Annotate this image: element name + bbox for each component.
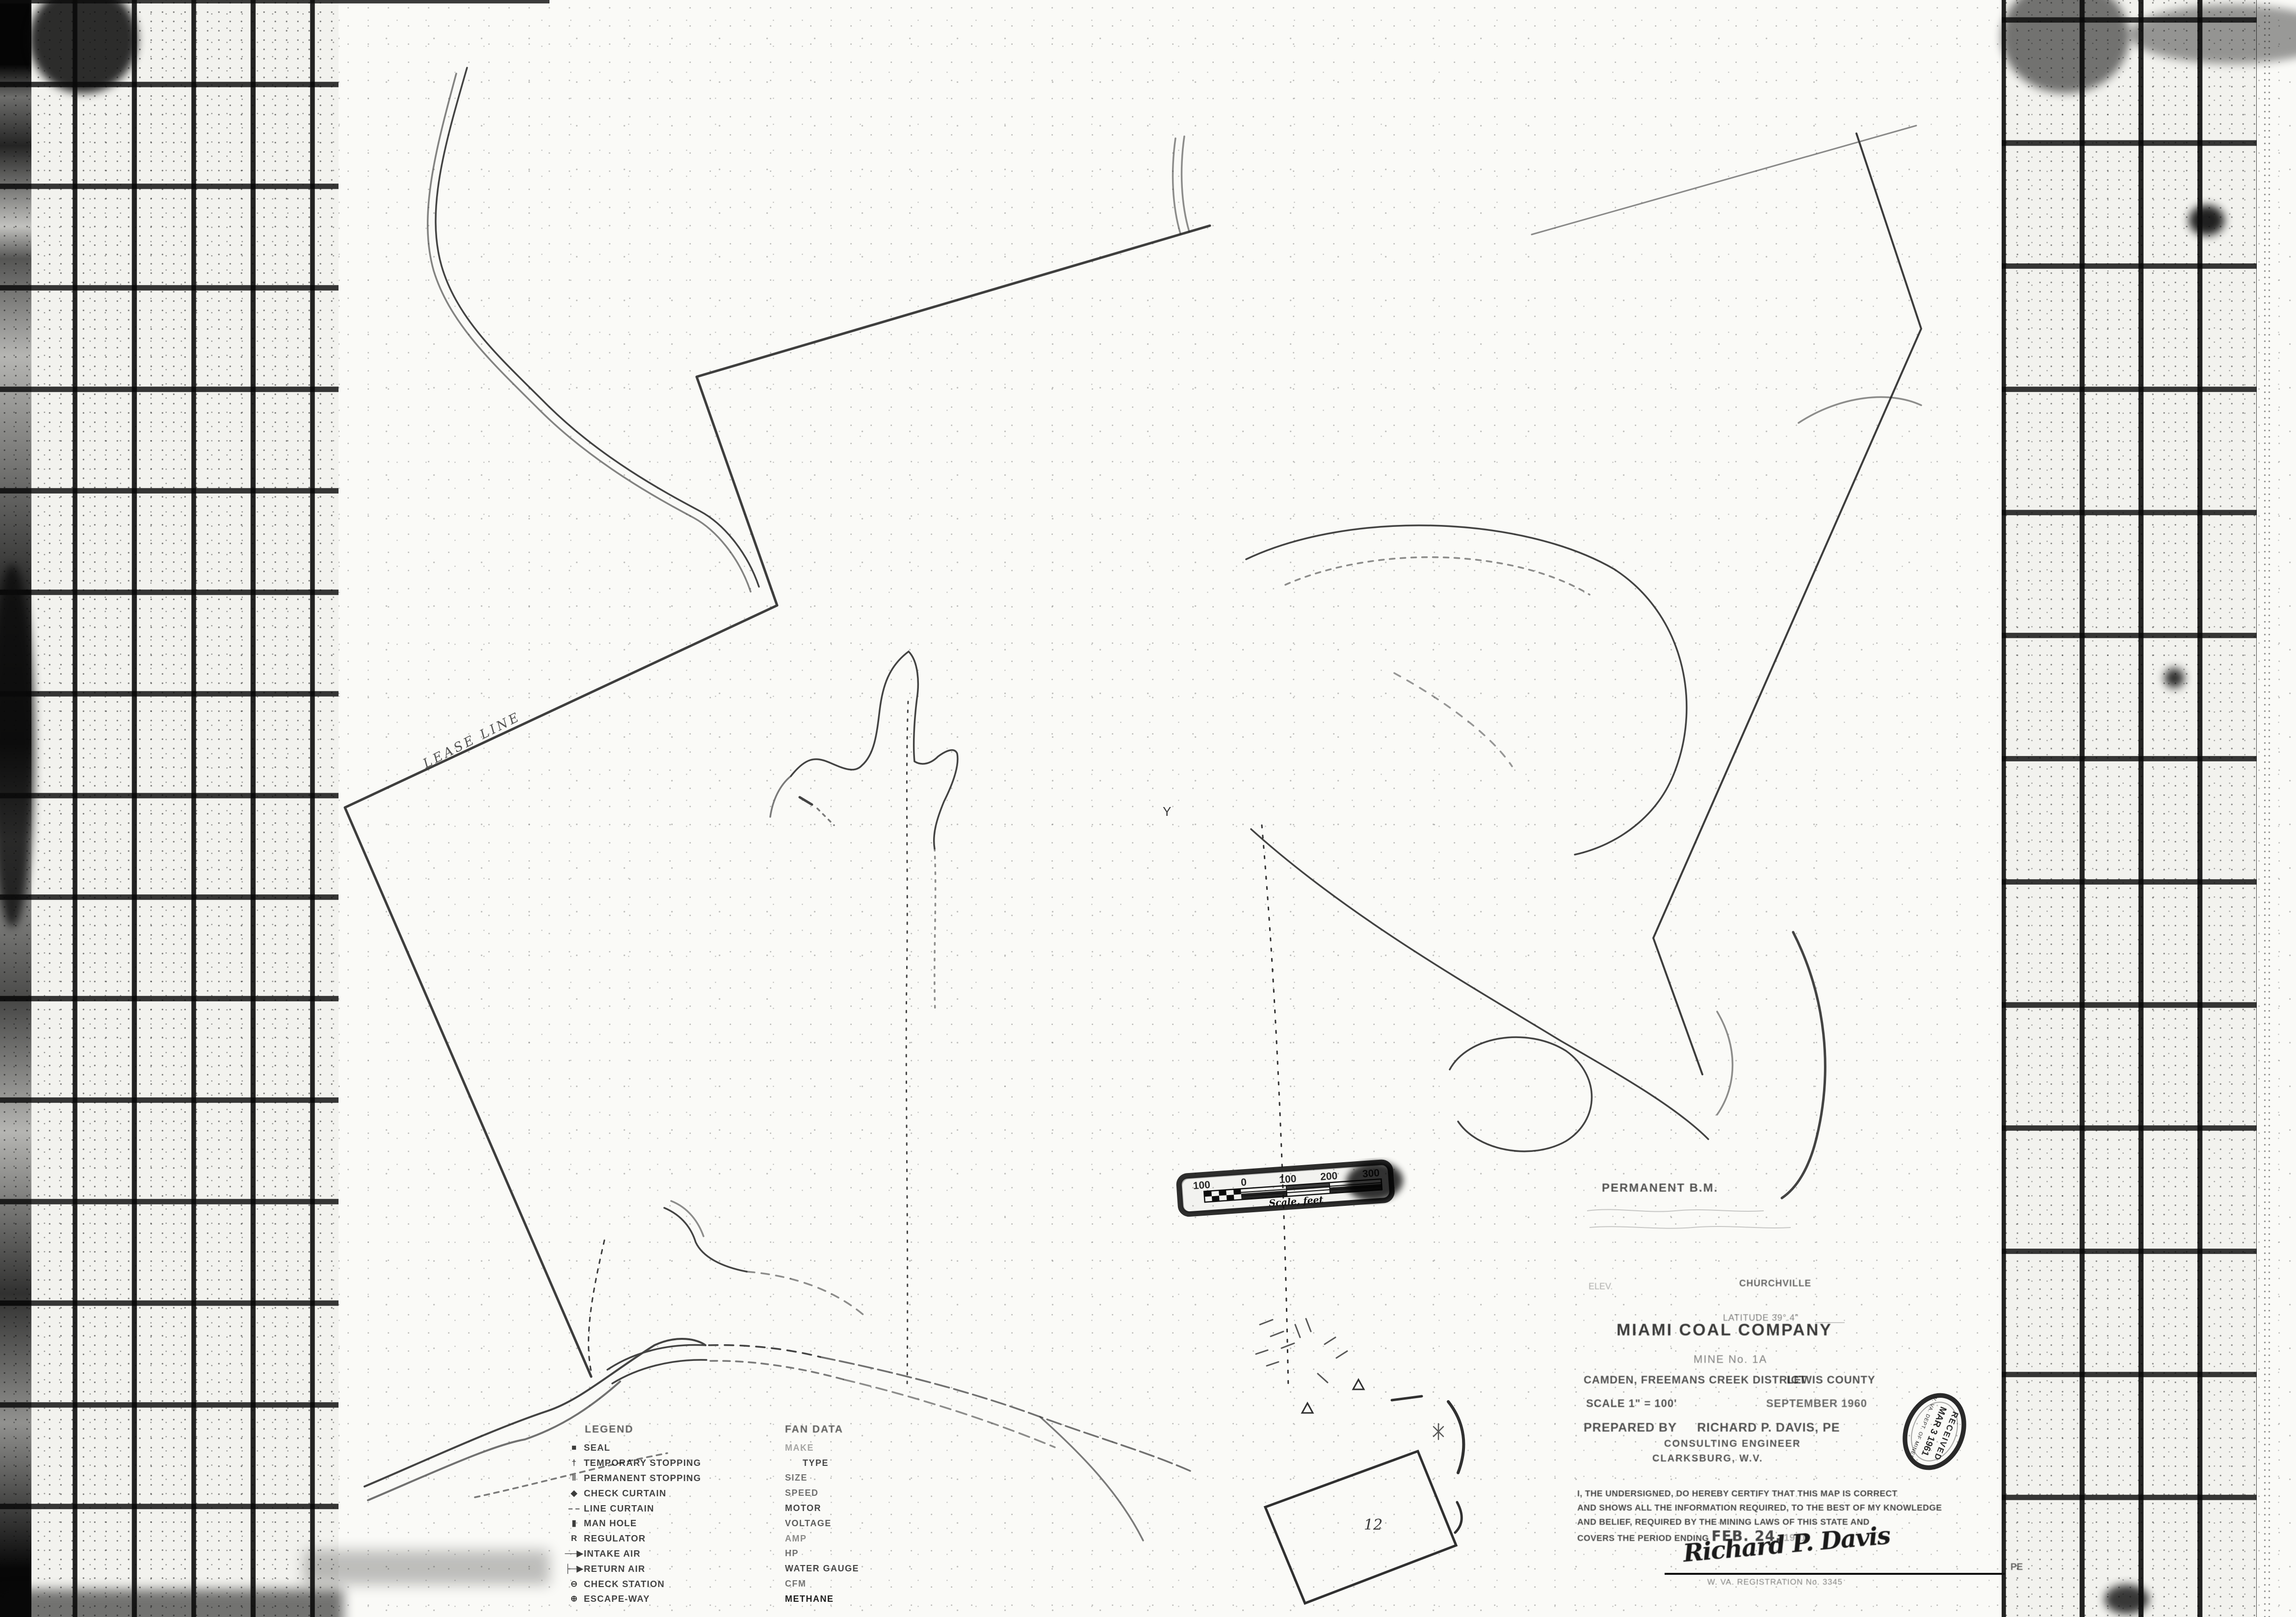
scale-tick: 100 xyxy=(1193,1179,1211,1192)
map-linework: Y 12 LEASE LINE 100 0 100 200 300 xyxy=(0,0,2296,1617)
registration-number: W. VA. REGISTRATION No. 3345 xyxy=(1707,1578,1843,1587)
man-hole-symbol: ▮ xyxy=(564,1518,584,1528)
certification-line: AND SHOWS ALL THE INFORMATION REQUIRED, … xyxy=(1577,1501,1942,1515)
district-line: CAMDEN, FREEMANS CREEK DISTRICT xyxy=(1584,1374,1806,1386)
engineer-city: CLARKSBURG, W.V. xyxy=(1652,1453,1763,1464)
fan-data-row: MAKE xyxy=(785,1440,859,1456)
legend-item-label: LINE CURTAIN xyxy=(584,1503,654,1514)
fan-data-panel: FAN DATA MAKE TYPE SIZE SPEED MOTOR VOLT… xyxy=(785,1424,859,1607)
signature-line xyxy=(1665,1573,2005,1575)
fan-field-label: VOLTAGE xyxy=(785,1518,832,1529)
check-curtain-symbol: ◆ xyxy=(564,1488,584,1498)
stream-lines xyxy=(365,68,1921,1540)
county-name: LEWIS COUNTY xyxy=(1787,1374,1876,1386)
lease-line-label: LEASE LINE xyxy=(420,709,523,772)
legend-item-check-station: ⊖CHECK STATION xyxy=(564,1576,701,1591)
legend-item-seal: ■SEAL xyxy=(564,1440,701,1456)
legend-item-label: SEAL xyxy=(584,1442,610,1453)
legend-item-check-curtain: ◆CHECK CURTAIN xyxy=(564,1486,701,1501)
legend-title: LEGEND xyxy=(585,1424,701,1435)
faded-note-scribbles xyxy=(1587,1209,1845,1323)
fan-data-row: HP xyxy=(785,1546,859,1562)
mine-name: MINE No. 1A xyxy=(1694,1353,1767,1366)
legend-item-temporary-stopping: †TEMPORARY STOPPING xyxy=(564,1456,701,1471)
note-permanent-bm: PERMANENT B.M. xyxy=(1602,1181,1718,1195)
company-name: MIAMI COAL COMPANY xyxy=(1617,1321,1832,1340)
fan-field-label: SIZE xyxy=(785,1473,808,1483)
fan-data-row: WATER GAUGE xyxy=(785,1561,859,1576)
legend-item-label: MAN HOLE xyxy=(584,1518,637,1529)
received-stamp: RECEIVED MAR 3 1961 W. VA. DEPT. OF MINE… xyxy=(1895,1386,1975,1477)
fan-data-row: TYPE xyxy=(785,1456,859,1471)
scale-bar: 100 0 100 200 300 Scale, feet xyxy=(1178,1160,1405,1215)
legend-item-label: CHECK CURTAIN xyxy=(584,1488,666,1499)
fan-field-label: MAKE xyxy=(785,1443,814,1453)
fan-data-row: VOLTAGE xyxy=(785,1516,859,1531)
fan-data-row: METHANE xyxy=(785,1591,859,1607)
legend-item-label: INTAKE AIR xyxy=(584,1548,641,1559)
note-elevation: ELEV. xyxy=(1589,1281,1613,1292)
y-marker-label: Y xyxy=(1163,804,1171,819)
temporary-stopping-symbol: † xyxy=(564,1458,584,1468)
legend-item-label: CHECK STATION xyxy=(584,1579,665,1590)
scale-tick: 0 xyxy=(1241,1176,1247,1188)
fan-field-label: CFM xyxy=(785,1579,807,1589)
intake-air-arrow-symbol: ──▶ xyxy=(564,1549,584,1559)
legend-item-line-curtain: – –LINE CURTAIN xyxy=(564,1501,701,1516)
signature-suffix: PE xyxy=(2010,1562,2023,1573)
legend-item-return-air: ├─▶RETURN AIR xyxy=(564,1561,701,1576)
legend-item-escape-way: ⊕ESCAPE-WAY xyxy=(564,1591,701,1607)
seal-symbol: ■ xyxy=(564,1443,584,1453)
fan-field-label: AMP xyxy=(785,1534,807,1544)
fan-field-label: MOTOR xyxy=(785,1503,821,1513)
scale-tick: 200 xyxy=(1320,1170,1338,1182)
regulator-symbol: R xyxy=(564,1534,584,1543)
engineer-name: RICHARD P. DAVIS, PE xyxy=(1697,1421,1840,1434)
prepared-by-line: PREPARED BY RICHARD P. DAVIS, PE xyxy=(1584,1421,1840,1435)
map-date: SEPTEMBER 1960 xyxy=(1766,1397,1867,1410)
legend-item-label: TEMPORARY STOPPING xyxy=(584,1458,701,1468)
legend-item-label: RETURN AIR xyxy=(584,1564,645,1574)
fan-data-row: SPEED xyxy=(785,1486,859,1501)
legend-item-permanent-stopping: ‖PERMANENT STOPPING xyxy=(564,1471,701,1486)
legend-item-regulator: RREGULATOR xyxy=(564,1531,701,1546)
fan-field-label: METHANE xyxy=(785,1594,834,1604)
prepared-by-label: PREPARED BY xyxy=(1584,1421,1676,1434)
check-station-symbol: ⊖ xyxy=(564,1579,584,1589)
fan-data-row: SIZE xyxy=(785,1471,859,1486)
fan-field-label: SPEED xyxy=(785,1488,819,1498)
engineer-title: CONSULTING ENGINEER xyxy=(1664,1438,1801,1450)
note-benchmark-ref: CHURCHVILLE xyxy=(1739,1278,1811,1289)
fan-data-row: MOTOR xyxy=(785,1501,859,1516)
fan-data-title: FAN DATA xyxy=(785,1424,859,1435)
fan-field-label: TYPE xyxy=(803,1458,829,1468)
return-air-arrow-symbol: ├─▶ xyxy=(564,1564,584,1574)
permanent-stopping-symbol: ‖ xyxy=(564,1473,584,1483)
fan-data-row: AMP xyxy=(785,1531,859,1546)
legend-item-label: PERMANENT STOPPING xyxy=(584,1473,701,1484)
fan-data-row: CFM xyxy=(785,1576,859,1591)
escape-way-symbol: ⊕ xyxy=(564,1594,584,1604)
scale-tick: 100 xyxy=(1279,1173,1297,1185)
line-curtain-symbol: – – xyxy=(564,1504,584,1513)
fan-field-label: WATER GAUGE xyxy=(785,1564,859,1574)
scanned-mine-map: Y 12 LEASE LINE 100 0 100 200 300 xyxy=(0,0,2296,1617)
fan-field-label: HP xyxy=(785,1548,799,1559)
legend-item-label: REGULATOR xyxy=(584,1533,646,1544)
legend-item-man-hole: ▮MAN HOLE xyxy=(564,1516,701,1531)
scale-line: SCALE 1" = 100' xyxy=(1586,1397,1677,1410)
legend-item-label: ESCAPE-WAY xyxy=(584,1593,650,1604)
certification-line: I, THE UNDERSIGNED, DO HEREBY CERTIFY TH… xyxy=(1577,1487,1942,1501)
legend-item-intake-air: ──▶INTAKE AIR xyxy=(564,1546,701,1562)
number-12-label: 12 xyxy=(1364,1516,1383,1534)
legend: LEGEND ■SEAL †TEMPORARY STOPPING ‖PERMAN… xyxy=(564,1424,701,1607)
